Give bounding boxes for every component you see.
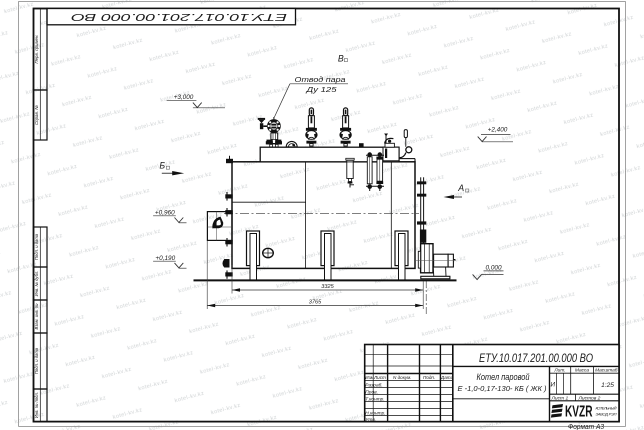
svg-text:KVZR: KVZR [565, 404, 593, 421]
svg-text:Пров.: Пров. [365, 389, 378, 395]
svg-text:Котел паровой: Котел паровой [477, 372, 530, 382]
svg-text:А: А [457, 183, 464, 193]
svg-text:Инв. № дубл.: Инв. № дубл. [34, 271, 39, 297]
svg-text:Н.контр.: Н.контр. [365, 410, 385, 416]
svg-text:1:25: 1:25 [601, 382, 614, 389]
svg-text:Лит.: Лит. [553, 368, 565, 374]
svg-text:3325: 3325 [321, 284, 334, 290]
svg-text:Подп.: Подп. [423, 375, 435, 380]
svg-text:+3,000: +3,000 [174, 94, 194, 101]
svg-text:Перв. примен.: Перв. примен. [34, 34, 39, 63]
svg-text:ЕТУ.10.017.201.00.000 ВО: ЕТУ.10.017.201.00.000 ВО [71, 11, 287, 22]
svg-text:ЗАВОД РЭП: ЗАВОД РЭП [596, 412, 617, 417]
svg-text:Отвод пара: Отвод пара [295, 75, 346, 84]
svg-text:Подп. и дата: Подп. и дата [34, 347, 39, 374]
svg-text:Е -1,0-0,17-130- КБ ( ЖК ): Е -1,0-0,17-130- КБ ( ЖК ) [458, 384, 547, 393]
svg-text:Дата: Дата [440, 375, 454, 380]
svg-text:Формат А3: Формат А3 [568, 424, 604, 430]
svg-text:Подп. и дата: Подп. и дата [34, 233, 39, 260]
svg-text:КОТЕЛЬНЫЙ: КОТЕЛЬНЫЙ [596, 406, 617, 411]
svg-text:Разраб.: Разраб. [365, 382, 382, 388]
svg-text:Лист: Лист [373, 375, 386, 380]
svg-text:Листов 2: Листов 2 [578, 396, 601, 402]
svg-text:+2,400: +2,400 [488, 126, 508, 133]
svg-text:N докум.: N докум. [393, 375, 412, 380]
svg-text:ЕТУ.10.017.201.00.000 ВО: ЕТУ.10.017.201.00.000 ВО [479, 353, 593, 365]
svg-text:Т.контр.: Т.контр. [365, 396, 384, 402]
svg-text:Ду 125: Ду 125 [305, 85, 338, 94]
svg-text:Взам. инв. №: Взам. инв. № [34, 303, 39, 329]
svg-text:3765: 3765 [309, 300, 322, 306]
svg-text:Справ. №: Справ. № [34, 105, 39, 125]
svg-text:В: В [338, 54, 344, 64]
svg-text:Масштаб: Масштаб [595, 368, 618, 374]
svg-text:Инв. № подл.: Инв. № подл. [34, 392, 39, 418]
svg-text:Масса: Масса [575, 368, 590, 374]
svg-text:0,000: 0,000 [486, 264, 502, 271]
svg-text:Лист 1: Лист 1 [551, 396, 569, 402]
svg-text:И: И [551, 382, 556, 389]
svg-text:Утв.: Утв. [365, 417, 376, 423]
svg-text:Б: Б [159, 160, 165, 170]
